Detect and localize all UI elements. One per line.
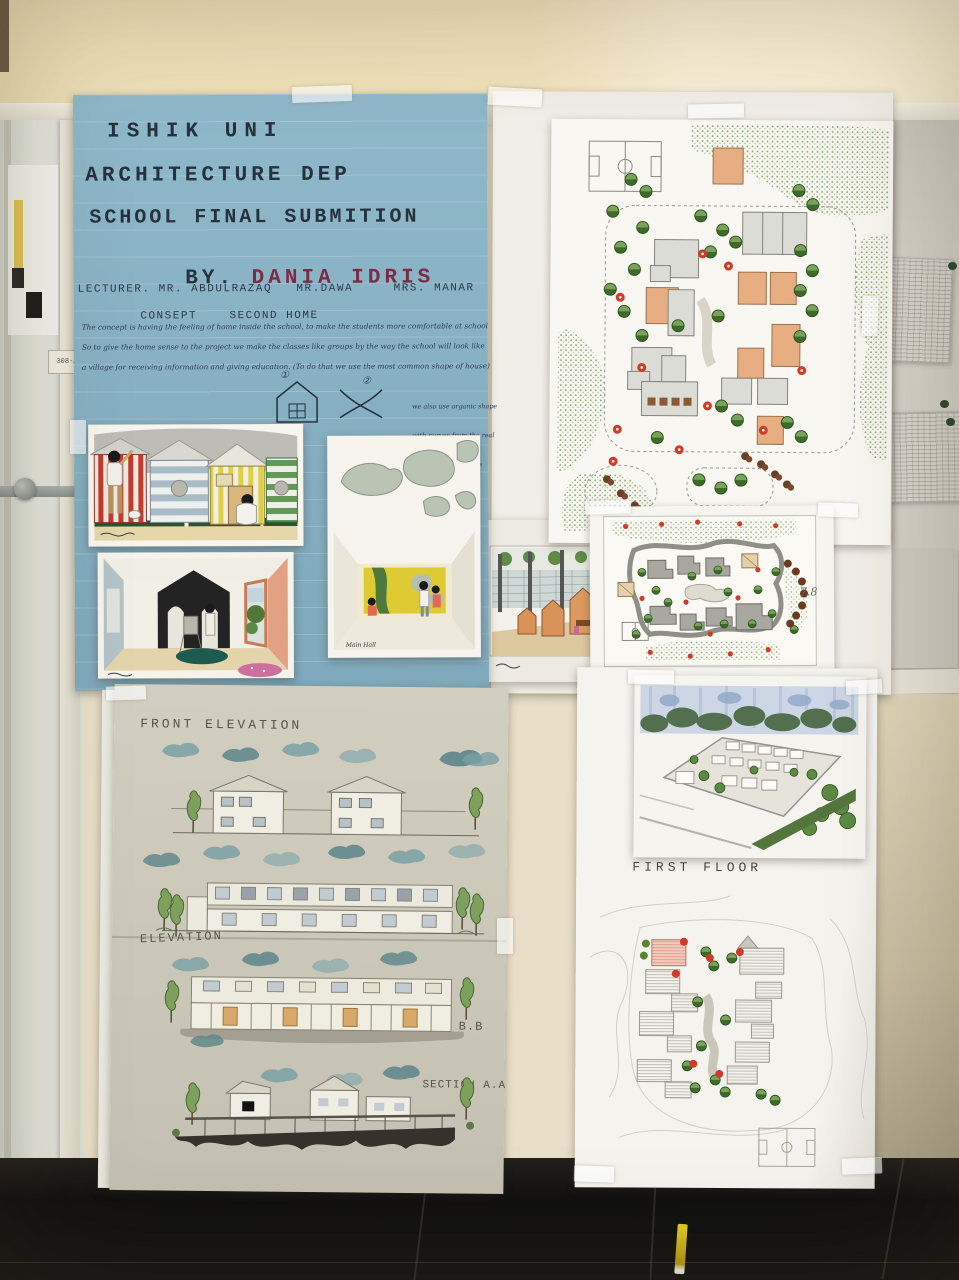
wall-corner-shadow — [0, 0, 9, 72]
clouds-row3 — [172, 949, 418, 974]
tape-13 — [70, 420, 86, 454]
floor-reflection-4 — [0, 1262, 959, 1263]
curve-doodle — [336, 386, 386, 422]
concept-value: SECOND HOME — [229, 310, 318, 322]
main-hall-svg — [327, 435, 481, 658]
magnet-3 — [946, 418, 955, 426]
tape-4 — [861, 296, 878, 337]
blue-title-poster: ISHIK UNI ARCHITECTURE DEP SCHOOL FINAL … — [73, 93, 489, 690]
tape-1 — [292, 85, 353, 103]
side-note-line1: we also use organic shape — [412, 403, 482, 413]
grade-mark: 7.8 — [800, 585, 818, 598]
clouds-row1 — [162, 741, 500, 767]
lecturer-line: LECTURER. MR. ABDULRAZAQ MR.DAWA MRS. MA… — [78, 282, 475, 295]
aerial-perspective-poster — [633, 675, 866, 859]
section-aa-drawing — [172, 1075, 475, 1152]
concept-body-line2: So to give the home sense to the project… — [82, 341, 485, 351]
tape-3 — [688, 104, 744, 119]
tape-10 — [842, 1157, 883, 1174]
case-lock-knob[interactable] — [14, 478, 36, 500]
tape-6 — [818, 502, 858, 517]
hallway-photo: 308-A — [0, 0, 959, 1280]
display-case-left: 308-A — [0, 120, 84, 1192]
case-handle-bar[interactable] — [0, 486, 84, 497]
tape-5 — [585, 499, 631, 515]
floor-reflection-3 — [649, 1178, 656, 1280]
front-elevation-drawing — [171, 775, 483, 836]
main-hall-caption: Main Hall — [346, 642, 376, 649]
house-doodle — [269, 378, 329, 426]
aerial-svg — [633, 675, 866, 859]
poster-title-line1: ISHIK UNI — [107, 120, 284, 144]
ceiling-blobs — [341, 440, 478, 516]
soccer-field — [589, 141, 661, 192]
magnet-2 — [940, 400, 949, 408]
interior-drawing — [98, 552, 294, 679]
elevations-svg — [109, 684, 508, 1194]
first-floor-label: FIRST FLOOR — [632, 860, 762, 876]
beach-huts-drawing — [88, 424, 303, 547]
concept-body-line1: The concept is having the feeling of hom… — [82, 321, 488, 331]
poster-title-line3: SCHOOL FINAL SUBMITION — [89, 206, 419, 230]
roof-plan-svg — [590, 505, 835, 684]
yellow-object[interactable] — [674, 1224, 687, 1275]
reflection-dark-mark-2 — [26, 292, 42, 318]
site-plan-poster — [549, 119, 894, 545]
tape-8 — [846, 679, 883, 695]
reflection-yellow-strip — [14, 200, 23, 272]
poster-title-line2: ARCHITECTURE DEP — [85, 164, 351, 188]
tape-12 — [497, 918, 513, 954]
caption-squiggle — [496, 664, 520, 668]
roof-plan-poster: 7.8 — [590, 505, 835, 684]
section-bb-drawing — [165, 975, 474, 1045]
main-hall-drawing: Main Hall — [327, 435, 481, 658]
concept-label: CONSEPT — [140, 310, 197, 322]
reflection-dark-mark-1 — [12, 268, 24, 288]
section-ground — [175, 1125, 455, 1152]
beach-huts-svg — [88, 424, 303, 547]
clouds-row2 — [143, 840, 486, 870]
floor-plan-svg — [579, 877, 873, 1184]
interior-svg — [98, 552, 294, 679]
tape-2 — [488, 87, 543, 108]
magnet-1 — [948, 262, 957, 270]
tape-9 — [574, 1165, 615, 1182]
caption-squiggle — [108, 673, 132, 676]
site-plan-svg — [549, 119, 894, 545]
elevations-poster: FRONT ELEVATION ELEVATION SECTION B.B SE… — [109, 684, 508, 1194]
tape-11 — [106, 685, 146, 700]
tape-7 — [628, 670, 674, 685]
elevation-drawing — [156, 882, 485, 939]
